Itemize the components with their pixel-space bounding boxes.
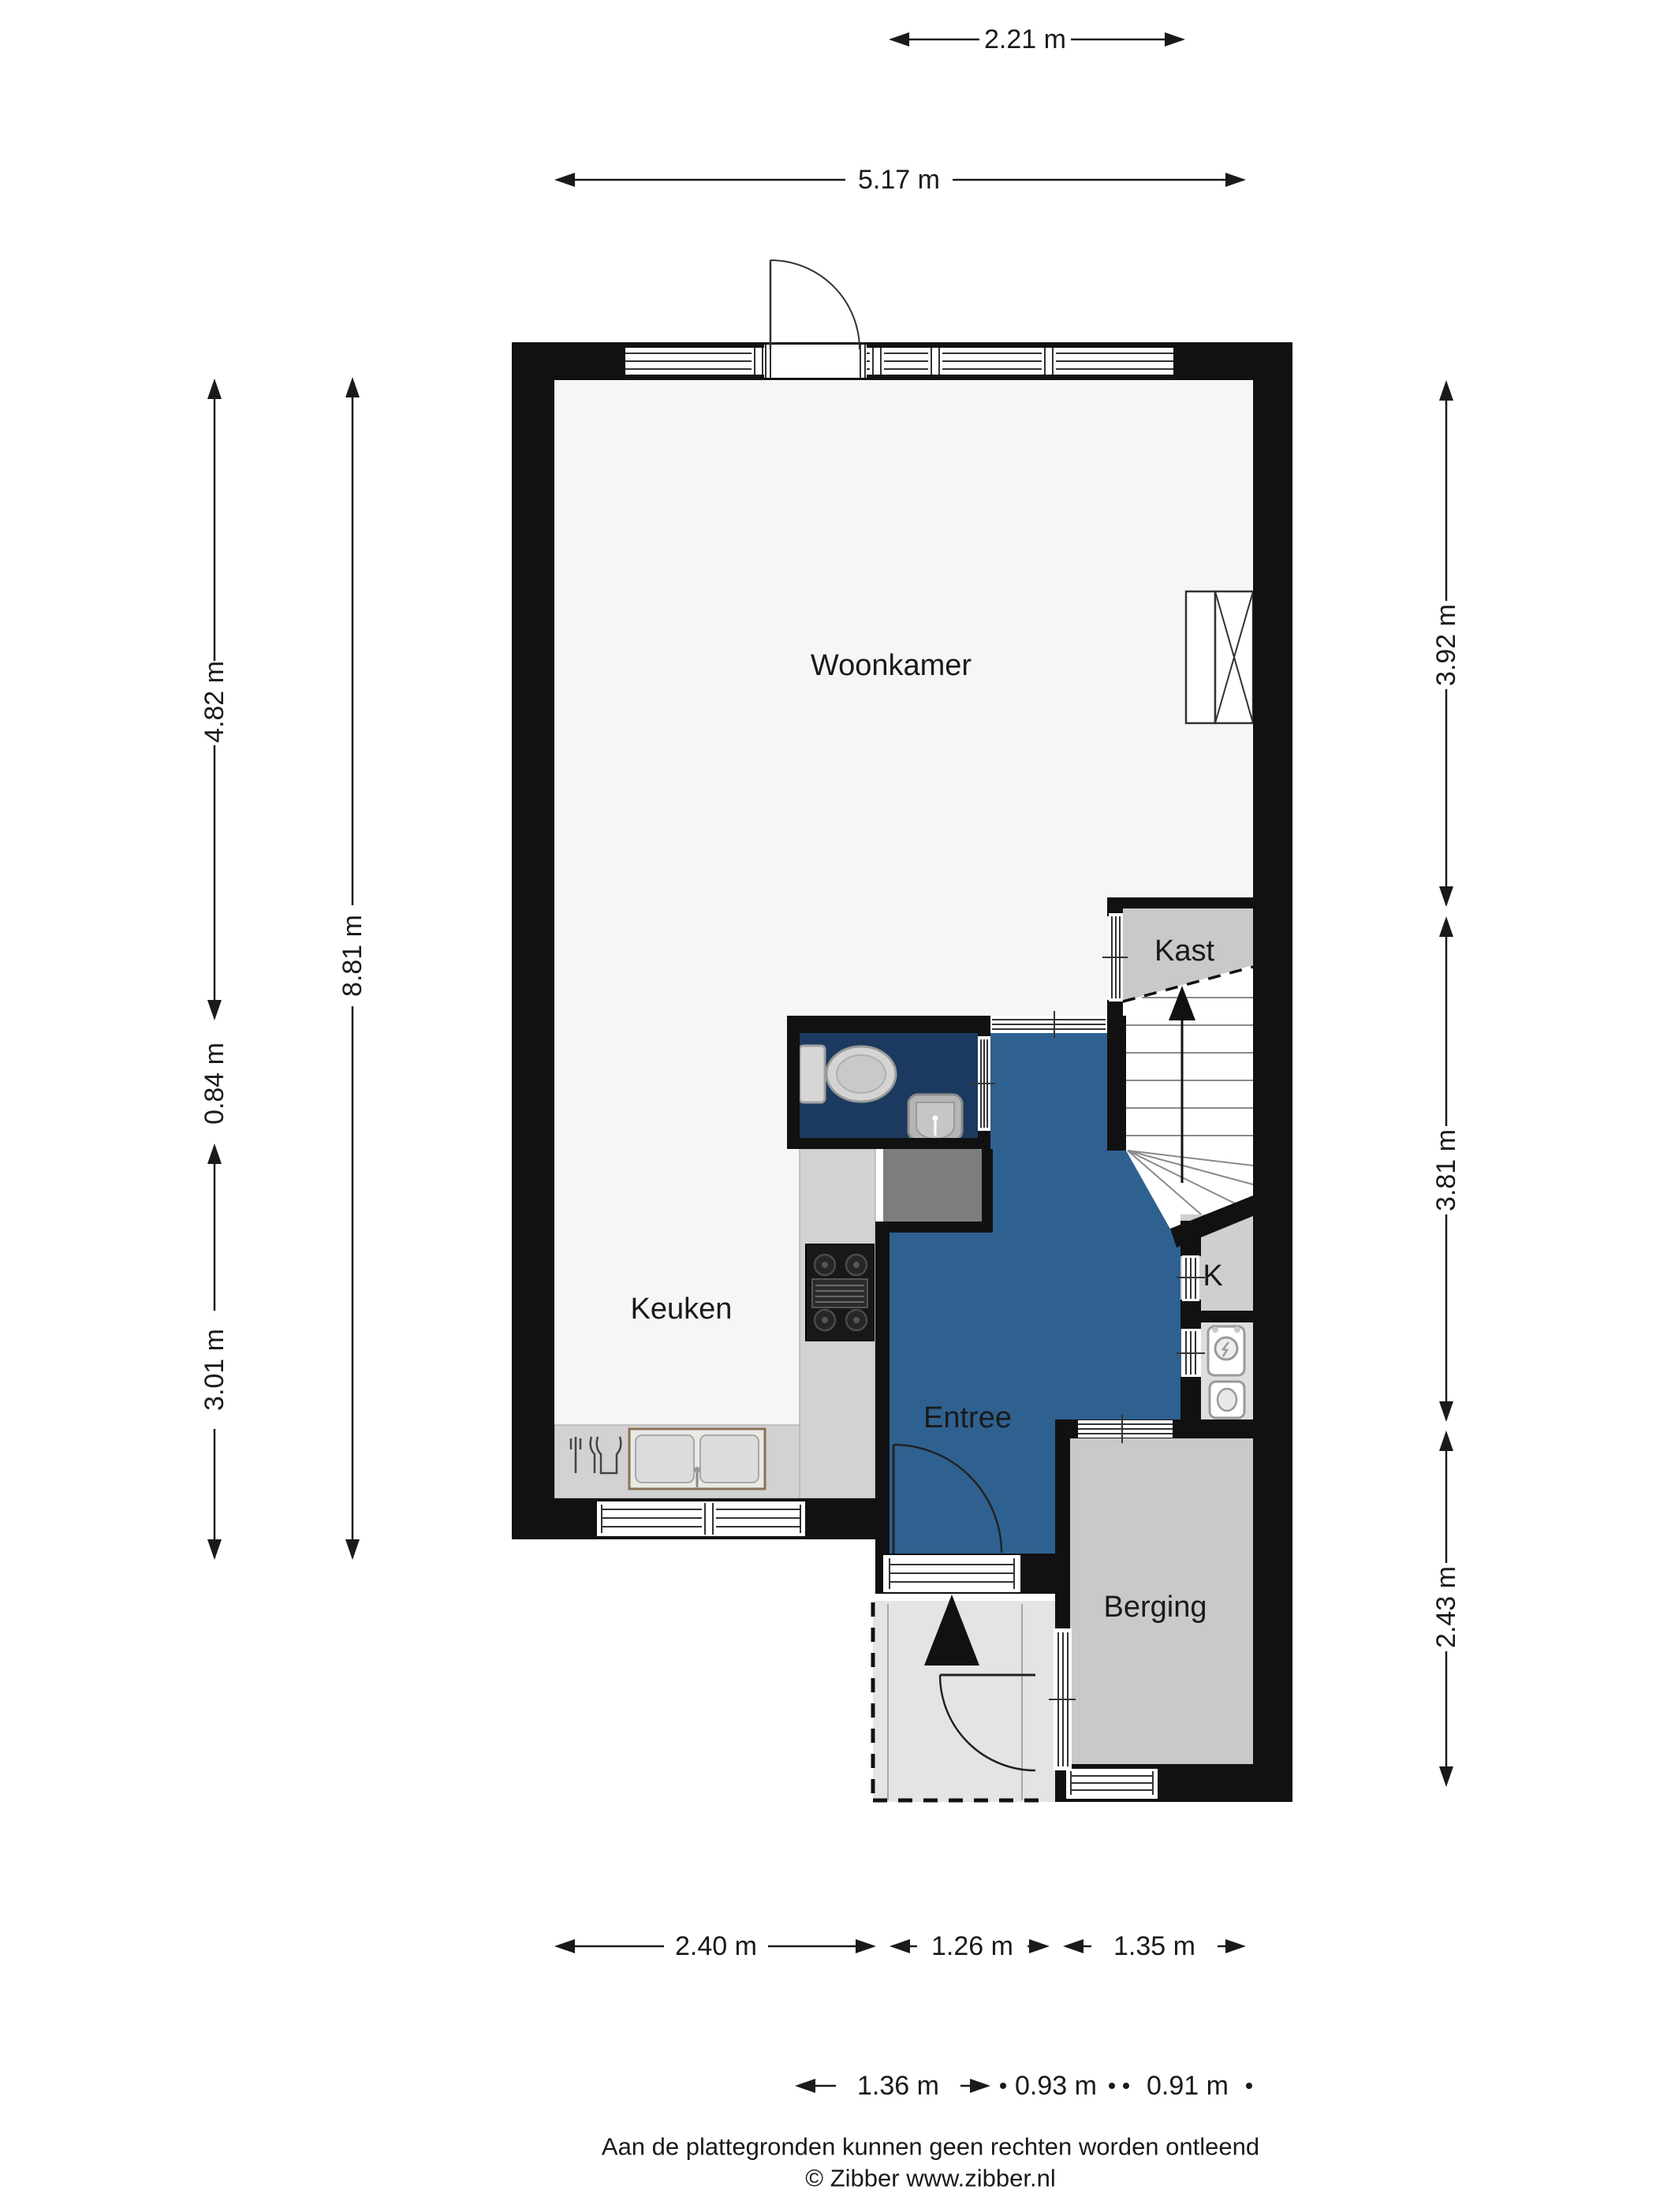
room-label-entree: Entree [923,1401,1012,1434]
dim-left-inner-2: 3.01 m [200,1162,229,1560]
boiler-icon [1208,1326,1244,1375]
dim-top-1: 5.17 m [554,165,1246,195]
svg-text:1.26 m: 1.26 m [931,1931,1013,1961]
dim-bottom-outer-2: 1.35 m [1063,1931,1246,1961]
sink-icon [908,1095,962,1140]
svg-text:2.21 m: 2.21 m [984,24,1066,54]
footer-disclaimer: Aan de plattegronden kunnen geen rechten… [602,2133,1259,2161]
floorplan-page: Woonkamer Keuken Entree Kast K Berging 2… [0,0,1656,2208]
svg-text:3.01 m: 3.01 m [200,1329,229,1411]
dim-left-inner-0: 4.82 m [200,379,229,1020]
window-berging-bottom [1066,1769,1158,1799]
room-label-woonkamer: Woonkamer [811,649,972,682]
svg-text:2.40 m: 2.40 m [675,1931,757,1961]
svg-text:0.84 m: 0.84 m [200,1043,229,1125]
duct-shaft-icon [1186,591,1253,723]
room-label-berging: Berging [1104,1591,1207,1624]
dim-left-outer-0: 8.81 m [338,377,367,1560]
room-label-kast: Kast [1154,934,1214,968]
floorplan-svg: Woonkamer Keuken Entree Kast K Berging 2… [0,0,1656,2208]
dim-right-1: 3.81 m [1431,916,1461,1422]
window-top-facade [625,348,1173,375]
dim-bottom-inner-1: 0.93 m [1000,2071,1115,2101]
svg-text:1.36 m: 1.36 m [857,2071,939,2101]
dim-bottom-inner-0: 1.36 m [795,2071,990,2101]
svg-text:2.43 m: 2.43 m [1431,1566,1461,1648]
dim-bottom-outer-0: 2.40 m [554,1931,876,1961]
room-label-k: K [1203,1259,1222,1293]
svg-text:1.35 m: 1.35 m [1113,1931,1195,1961]
room-label-keuken: Keuken [631,1293,733,1326]
svg-text:3.81 m: 3.81 m [1431,1129,1461,1211]
footer-copyright: © Zibber www.zibber.nl [805,2165,1055,2192]
window-keuken [597,1501,805,1536]
svg-text:0.93 m: 0.93 m [1015,2071,1097,2101]
svg-text:5.17 m: 5.17 m [858,165,940,195]
stove-icon [806,1244,874,1341]
dim-right-0: 3.92 m [1431,380,1461,907]
dim-top-0: 2.21 m [889,24,1185,54]
cabinet-dark [883,1149,982,1222]
dim-bottom-inner-2: 0.91 m [1123,2071,1252,2101]
dim-left-inner-1: 0.84 m [200,1043,229,1164]
svg-text:4.82 m: 4.82 m [200,661,229,743]
svg-text:0.91 m: 0.91 m [1147,2071,1229,2101]
porch-area [873,1595,1055,1802]
dim-right-2: 2.43 m [1431,1431,1461,1787]
svg-text:8.81 m: 8.81 m [338,915,367,997]
kitchen-sink-icon [629,1429,765,1489]
toilet-icon [800,1046,896,1102]
water-heater-icon [1210,1382,1244,1418]
top-door [764,260,867,378]
svg-text:3.92 m: 3.92 m [1431,604,1461,686]
dim-bottom-outer-1: 1.26 m [890,1931,1050,1961]
